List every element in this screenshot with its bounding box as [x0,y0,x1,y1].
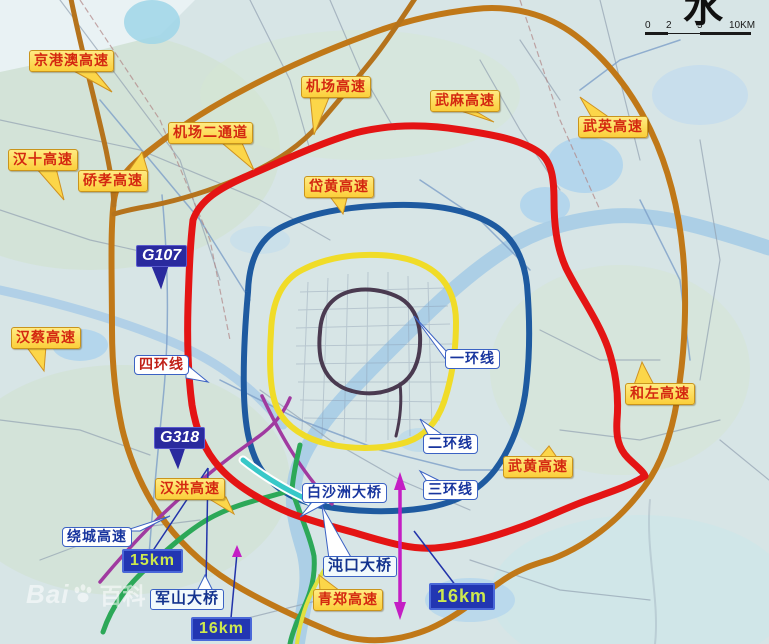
callout-first-ring: 一环线 [445,349,500,369]
map-artwork [0,0,769,644]
callout-third-ring: 三环线 [423,480,478,500]
callout-daihuang-expwy: 岱黄高速 [304,176,374,198]
callout-hanshi-expwy: 汉十高速 [8,149,78,171]
callout-hanhong-expwy: 汉洪高速 [155,478,225,500]
callout-fourth-ring: 四环线 [134,355,189,375]
callout-wuhuang-expwy: 武黄高速 [503,456,573,478]
scale-tick: 10KM [729,20,755,31]
paw-icon [71,582,95,606]
callout-airport-expwy: 机场高速 [301,76,371,98]
label-junshan-bridge: 军山大桥 [150,589,224,610]
callout-baishazhou-bridge: 白沙洲大桥 [302,483,387,503]
callout-qiaoxiao-expwy: 硚孝高速 [78,170,148,192]
callout-wuma-expwy: 武麻高速 [430,90,500,112]
watermark-text-cjk: 百科 [99,577,145,611]
scale-bar-segment [645,32,668,35]
badge-16km-junshan: 16km [191,617,252,641]
shield-g318: G318 [154,427,205,449]
callout-airport-second-corridor: 机场二通道 [168,122,253,144]
corner-map-glyph: 水 [683,0,723,33]
watermark-text-latin: Bai [26,579,69,610]
callout-jinggangao-expwy: 京港澳高速 [29,50,114,72]
map-canvas: 京港澳高速 机场高速 武麻高速 武英高速 机场二通道 汉十高速 硚孝高速 岱黄高… [0,0,769,644]
badge-15km: 15km [122,549,183,573]
label-dunkou-bridge: 沌口大桥 [323,556,397,577]
callout-wuying-expwy: 武英高速 [578,116,648,138]
callout-second-ring: 二环线 [423,434,478,454]
callout-hancai-expwy: 汉蔡高速 [11,327,81,349]
scale-tick: 2 [666,20,672,31]
callout-hezuo-expwy: 和左高速 [625,383,695,405]
badge-16km-dunkou: 16km [429,583,495,610]
scale-tick: 0 [645,20,651,31]
callout-qingzheng-expwy: 青郑高速 [313,589,383,611]
callout-raocheng-expwy: 绕城高速 [62,527,132,547]
shield-g107: G107 [136,245,187,267]
baidu-watermark: Bai 百科 [26,577,145,611]
